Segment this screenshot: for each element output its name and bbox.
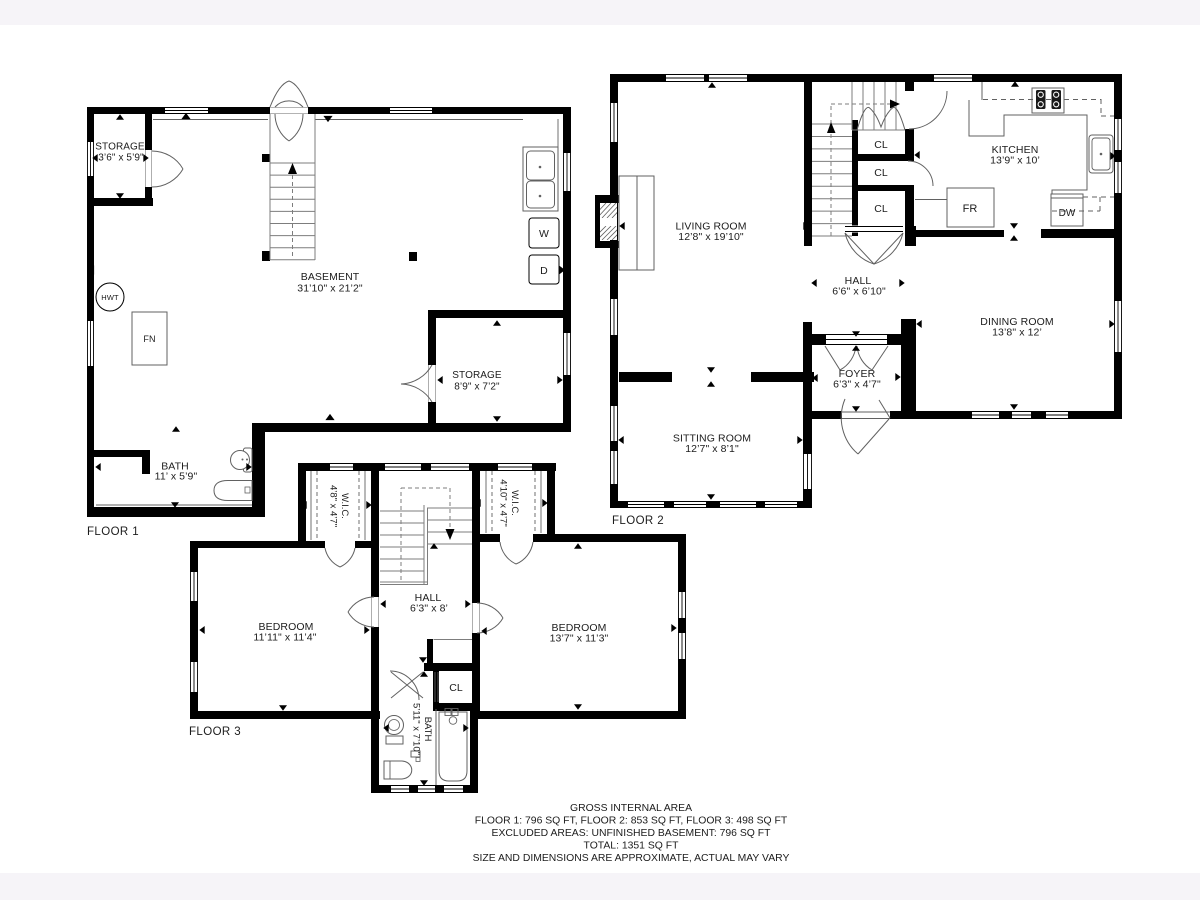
svg-text:EXCLUDED AREAS: UNFINISHED BAS: EXCLUDED AREAS: UNFINISHED BASEMENT: 796… <box>492 828 772 839</box>
svg-text:CL: CL <box>449 682 463 694</box>
svg-text:SIZE AND DIMENSIONS ARE APPROX: SIZE AND DIMENSIONS ARE APPROXIMATE, ACT… <box>473 853 790 864</box>
svg-text:FLOOR 1: FLOOR 1 <box>87 526 139 538</box>
svg-text:6’3" x 8’: 6’3" x 8’ <box>410 603 448 615</box>
svg-text:STORAGE: STORAGE <box>95 142 145 153</box>
svg-text:4’10" x 4’7": 4’10" x 4’7" <box>498 479 509 526</box>
svg-text:13’9" x 10’: 13’9" x 10’ <box>990 155 1040 167</box>
svg-text:W.I.C.: W.I.C. <box>509 490 520 516</box>
svg-text:FR: FR <box>963 203 978 215</box>
svg-text:5’11" x 7’10": 5’11" x 7’10" <box>411 703 422 755</box>
svg-text:FLOOR 2: FLOOR 2 <box>612 515 664 527</box>
svg-text:DW: DW <box>1059 208 1076 219</box>
svg-text:CL: CL <box>874 167 888 179</box>
svg-text:12’7" x 8’1": 12’7" x 8’1" <box>685 443 739 455</box>
svg-text:W.I.C.: W.I.C. <box>339 493 350 519</box>
svg-text:TOTAL: 1351 SQ FT: TOTAL: 1351 SQ FT <box>584 841 680 852</box>
svg-text:13’8" x 12’: 13’8" x 12’ <box>992 327 1042 339</box>
svg-text:FN: FN <box>143 334 155 344</box>
svg-text:W: W <box>539 228 549 240</box>
svg-text:CL: CL <box>874 203 888 215</box>
svg-text:8’9" x 7’2": 8’9" x 7’2" <box>454 382 500 393</box>
svg-text:6’6" x 6’10": 6’6" x 6’10" <box>832 286 886 298</box>
svg-text:11’ x 5’9": 11’ x 5’9" <box>155 471 198 483</box>
svg-text:6’3" x 4’7": 6’3" x 4’7" <box>833 379 881 391</box>
svg-text:4’8" x 4’7": 4’8" x 4’7" <box>328 485 339 527</box>
svg-text:FLOOR 3: FLOOR 3 <box>189 726 241 738</box>
svg-text:HWT: HWT <box>101 293 119 302</box>
svg-text:BATH: BATH <box>422 717 433 742</box>
svg-text:GROSS INTERNAL AREA: GROSS INTERNAL AREA <box>570 803 692 814</box>
svg-text:CL: CL <box>874 139 888 151</box>
svg-text:STORAGE: STORAGE <box>452 370 502 381</box>
svg-text:11’11" x 11’4": 11’11" x 11’4" <box>253 632 316 644</box>
svg-text:12’8" x 19’10": 12’8" x 19’10" <box>678 231 744 243</box>
svg-text:BASEMENT: BASEMENT <box>301 271 360 283</box>
svg-text:FLOOR 1: 796 SQ FT, FLOOR 2: 8: FLOOR 1: 796 SQ FT, FLOOR 2: 853 SQ FT, … <box>475 816 788 827</box>
svg-text:D: D <box>540 265 548 277</box>
svg-text:13’7" x 11’3": 13’7" x 11’3" <box>550 633 609 645</box>
svg-text:3’6" x 5’9": 3’6" x 5’9" <box>98 153 144 164</box>
svg-text:31’10" x 21’2": 31’10" x 21’2" <box>297 283 363 295</box>
